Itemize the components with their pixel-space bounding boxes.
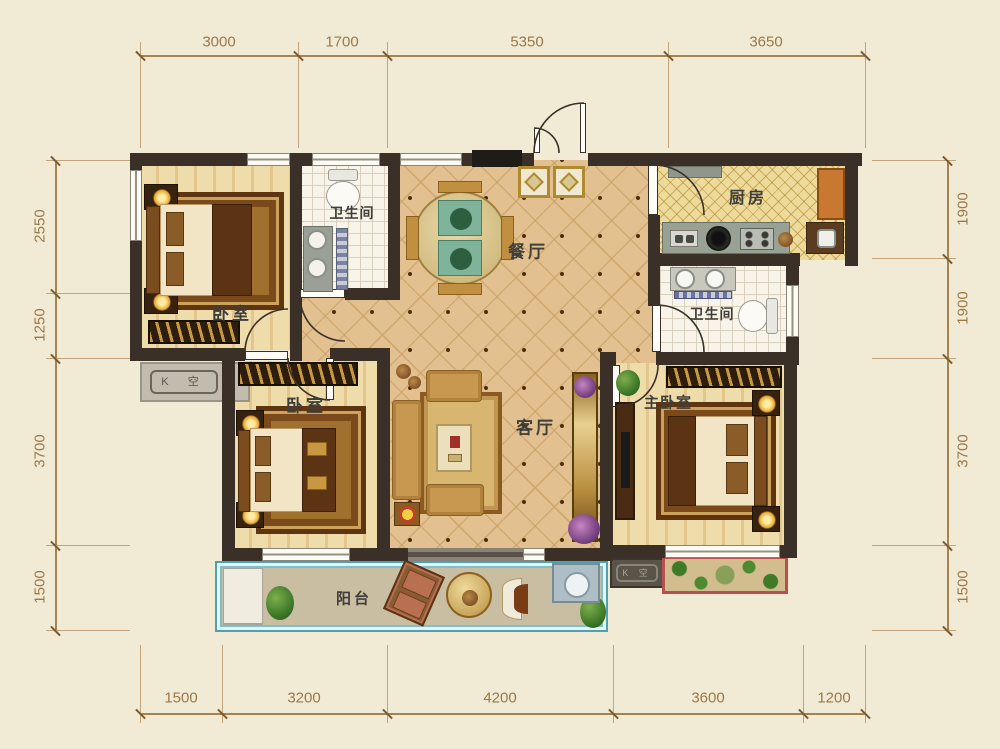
plate <box>450 248 472 270</box>
dimension-line-right <box>947 160 949 630</box>
shear-wall <box>472 150 522 167</box>
nightstand <box>752 506 780 532</box>
entry-tile-diamond <box>559 172 579 192</box>
balcony-cabinet <box>223 568 263 625</box>
master-label: 主卧室 <box>644 392 692 413</box>
dim-bottom-4: 1200 <box>817 690 850 707</box>
flowers <box>574 376 596 398</box>
window <box>262 548 350 561</box>
dining-chair <box>406 216 419 260</box>
wall <box>648 215 660 255</box>
kitchen-plant <box>778 232 793 247</box>
entry-door-leaf <box>580 103 586 153</box>
plate <box>450 208 472 230</box>
dimension-line-bottom <box>140 713 865 715</box>
bed-headboard <box>238 430 250 512</box>
extension-line <box>46 160 130 161</box>
washer-drum <box>564 572 590 598</box>
dim-right-0: 1900 <box>955 192 972 225</box>
pillow <box>166 212 184 246</box>
dim-top-3: 3650 <box>749 34 782 51</box>
wall <box>656 352 799 365</box>
dim-left-3: 1500 <box>32 570 49 603</box>
ac-platform-bottom-box: K 空 <box>616 564 658 582</box>
window <box>786 285 799 337</box>
wall <box>345 288 400 300</box>
wall <box>388 153 400 300</box>
kitchen-top-counter <box>668 166 722 178</box>
placemat <box>438 240 482 276</box>
table-item <box>462 590 478 606</box>
wall <box>130 153 247 166</box>
bed-blanket <box>212 204 252 296</box>
bath2-label: 卫生间 <box>690 304 735 324</box>
entry-tile <box>518 166 550 198</box>
pillow <box>255 436 271 466</box>
window <box>523 548 545 561</box>
floor-plan: K 空 K 空 <box>0 0 1000 749</box>
basin <box>307 230 327 250</box>
small-appliance <box>670 230 698 247</box>
wall <box>130 241 142 361</box>
bed-headboard <box>146 206 160 294</box>
wall <box>350 548 408 561</box>
extension-line <box>872 358 956 359</box>
kitchen-label: 厨房 <box>729 184 767 208</box>
bath1-shelf <box>336 228 348 290</box>
window <box>400 153 462 166</box>
wall <box>784 352 797 558</box>
extension-line <box>46 358 130 359</box>
half-moon-inner <box>514 584 528 614</box>
balcony-table <box>446 572 492 618</box>
master-plant <box>616 370 640 396</box>
dim-top-2: 5350 <box>510 34 543 51</box>
living-label: 客厅 <box>516 414 556 439</box>
dot <box>675 235 683 243</box>
wall <box>377 348 390 561</box>
lamp-icon <box>758 511 776 529</box>
armchair <box>426 484 484 516</box>
bath2-door-leaf <box>652 305 661 352</box>
window <box>130 170 142 241</box>
bed-blanket <box>668 416 696 506</box>
dim-right-1: 1900 <box>955 291 972 324</box>
toilet-tank <box>328 169 358 181</box>
dining-chair <box>438 283 482 295</box>
side-table <box>394 502 420 526</box>
entry-tile <box>553 166 585 198</box>
kitchen-door-leaf <box>648 165 658 215</box>
stove <box>740 228 774 250</box>
wall <box>648 253 800 266</box>
wall <box>845 153 858 266</box>
window <box>247 153 290 166</box>
placemat <box>438 200 482 236</box>
dim-bottom-3: 3600 <box>691 690 724 707</box>
dim-top-0: 3000 <box>202 34 235 51</box>
bedroom1-door-leaf <box>245 351 288 360</box>
bath1-label: 卫生间 <box>330 203 375 223</box>
ac-platform-left-box: K 空 <box>150 370 218 394</box>
pillow <box>726 424 748 456</box>
flower-bed <box>662 556 788 594</box>
master-tv-cabinet <box>615 402 635 520</box>
accent-pillow <box>307 476 327 490</box>
entry-door-leaf-small <box>534 128 540 153</box>
coffee-table <box>436 424 472 472</box>
dim-bottom-1: 3200 <box>287 690 320 707</box>
dot <box>686 235 694 243</box>
bath2-cabinet <box>674 291 732 299</box>
flowers <box>568 514 600 544</box>
bed-headboard <box>754 416 767 506</box>
bedroom1-label: 卧室 <box>212 300 252 325</box>
wall <box>130 153 142 170</box>
dim-top-1: 1700 <box>325 34 358 51</box>
fridge <box>817 168 845 220</box>
wall <box>588 153 862 166</box>
living-plant <box>408 376 421 389</box>
wall <box>780 545 797 558</box>
dim-left-2: 3700 <box>32 434 49 467</box>
table-item <box>450 436 460 448</box>
wok <box>706 226 731 251</box>
dim-bottom-0: 1500 <box>164 690 197 707</box>
dining-chair <box>438 181 482 193</box>
master-wardrobe <box>666 366 782 388</box>
extension-line <box>872 630 956 631</box>
dim-right-2: 3700 <box>955 434 972 467</box>
balcony-plant-left <box>266 586 294 620</box>
basin <box>307 258 327 278</box>
dim-right-3: 1500 <box>955 570 972 603</box>
bed-blanket <box>302 428 336 512</box>
basin <box>705 269 725 289</box>
lamp-icon <box>399 506 416 523</box>
pillow <box>726 462 748 494</box>
nightstand <box>752 390 780 416</box>
sofa-long <box>392 400 422 500</box>
dim-left-1: 1250 <box>32 308 49 341</box>
bedroom2-label: 卧室 <box>286 392 326 417</box>
pillow <box>255 472 271 502</box>
accent-pillow <box>307 442 327 456</box>
wall <box>608 545 665 558</box>
table-item <box>448 454 462 462</box>
dining-label: 餐厅 <box>508 238 548 263</box>
sink-basin <box>817 229 836 248</box>
extension-line <box>46 545 130 546</box>
tv-icon <box>621 432 630 488</box>
extension-line <box>872 545 956 546</box>
dimension-line-top <box>140 55 865 57</box>
kitchen-sink-cabinet <box>806 222 844 254</box>
wall <box>545 548 608 561</box>
window <box>665 545 780 558</box>
extension-line <box>872 258 956 259</box>
wall <box>290 153 302 361</box>
dim-left-0: 2550 <box>32 209 49 242</box>
basin <box>675 269 695 289</box>
balcony-label: 阳台 <box>336 588 372 609</box>
toilet-bowl <box>738 300 768 332</box>
extension-line <box>872 160 956 161</box>
pillow <box>166 252 184 286</box>
wall <box>648 266 660 306</box>
toilet-tank <box>766 298 778 334</box>
armchair <box>426 370 482 402</box>
washing-machine <box>552 563 600 603</box>
window <box>312 153 380 166</box>
living-plant <box>396 364 411 379</box>
sliding-door <box>408 548 523 561</box>
wall <box>222 548 262 561</box>
dim-bottom-2: 4200 <box>483 690 516 707</box>
lamp-icon <box>758 395 776 413</box>
dimension-line-left <box>55 160 57 630</box>
extension-line <box>46 293 130 294</box>
extension-line <box>46 630 130 631</box>
bedroom2-wardrobe <box>238 362 358 386</box>
wall <box>222 348 235 561</box>
entry-tile-diamond <box>524 172 544 192</box>
